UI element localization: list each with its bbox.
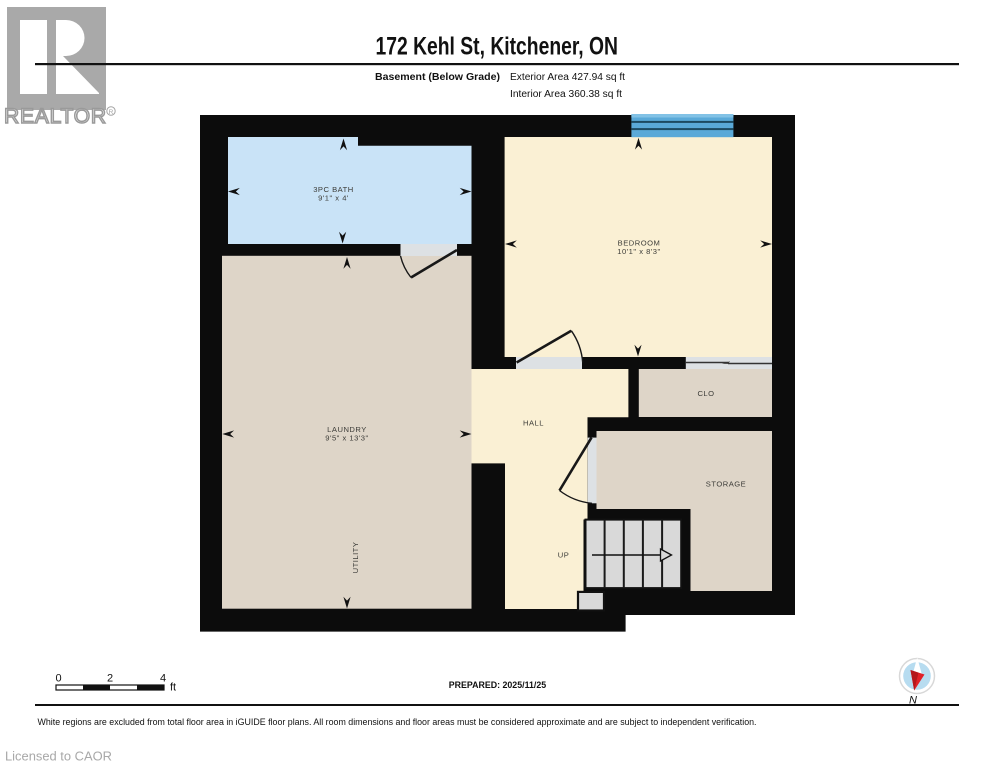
svg-text:Licensed to CAOR: Licensed to CAOR bbox=[5, 749, 112, 764]
svg-text:CLO: CLO bbox=[697, 389, 714, 398]
svg-text:White regions are excluded fro: White regions are excluded from total fl… bbox=[38, 717, 757, 727]
svg-text:4: 4 bbox=[160, 673, 166, 685]
svg-text:Interior Area 360.38 sq ft: Interior Area 360.38 sq ft bbox=[510, 89, 622, 100]
svg-text:172 Kehl St, Kitchener, ON: 172 Kehl St, Kitchener, ON bbox=[376, 33, 619, 61]
svg-text:R: R bbox=[109, 109, 114, 116]
svg-text:ft: ft bbox=[170, 682, 176, 694]
svg-text:STORAGE: STORAGE bbox=[706, 480, 747, 489]
svg-text:10'1" x 8'3": 10'1" x 8'3" bbox=[617, 247, 660, 256]
svg-text:Exterior Area 427.94 sq ft: Exterior Area 427.94 sq ft bbox=[510, 72, 625, 83]
svg-text:9'1" x 4': 9'1" x 4' bbox=[318, 193, 349, 202]
svg-text:REALTOR: REALTOR bbox=[4, 105, 107, 128]
svg-text:9'5" x 13'3": 9'5" x 13'3" bbox=[325, 434, 368, 443]
svg-text:UTILITY: UTILITY bbox=[351, 542, 360, 574]
svg-text:HALL: HALL bbox=[523, 419, 544, 428]
svg-text:Basement (Below Grade): Basement (Below Grade) bbox=[375, 72, 500, 83]
svg-text:UP: UP bbox=[558, 551, 570, 560]
svg-text:2: 2 bbox=[107, 673, 113, 685]
svg-text:PREPARED: 2025/11/25: PREPARED: 2025/11/25 bbox=[449, 680, 547, 691]
svg-text:0: 0 bbox=[55, 673, 61, 685]
